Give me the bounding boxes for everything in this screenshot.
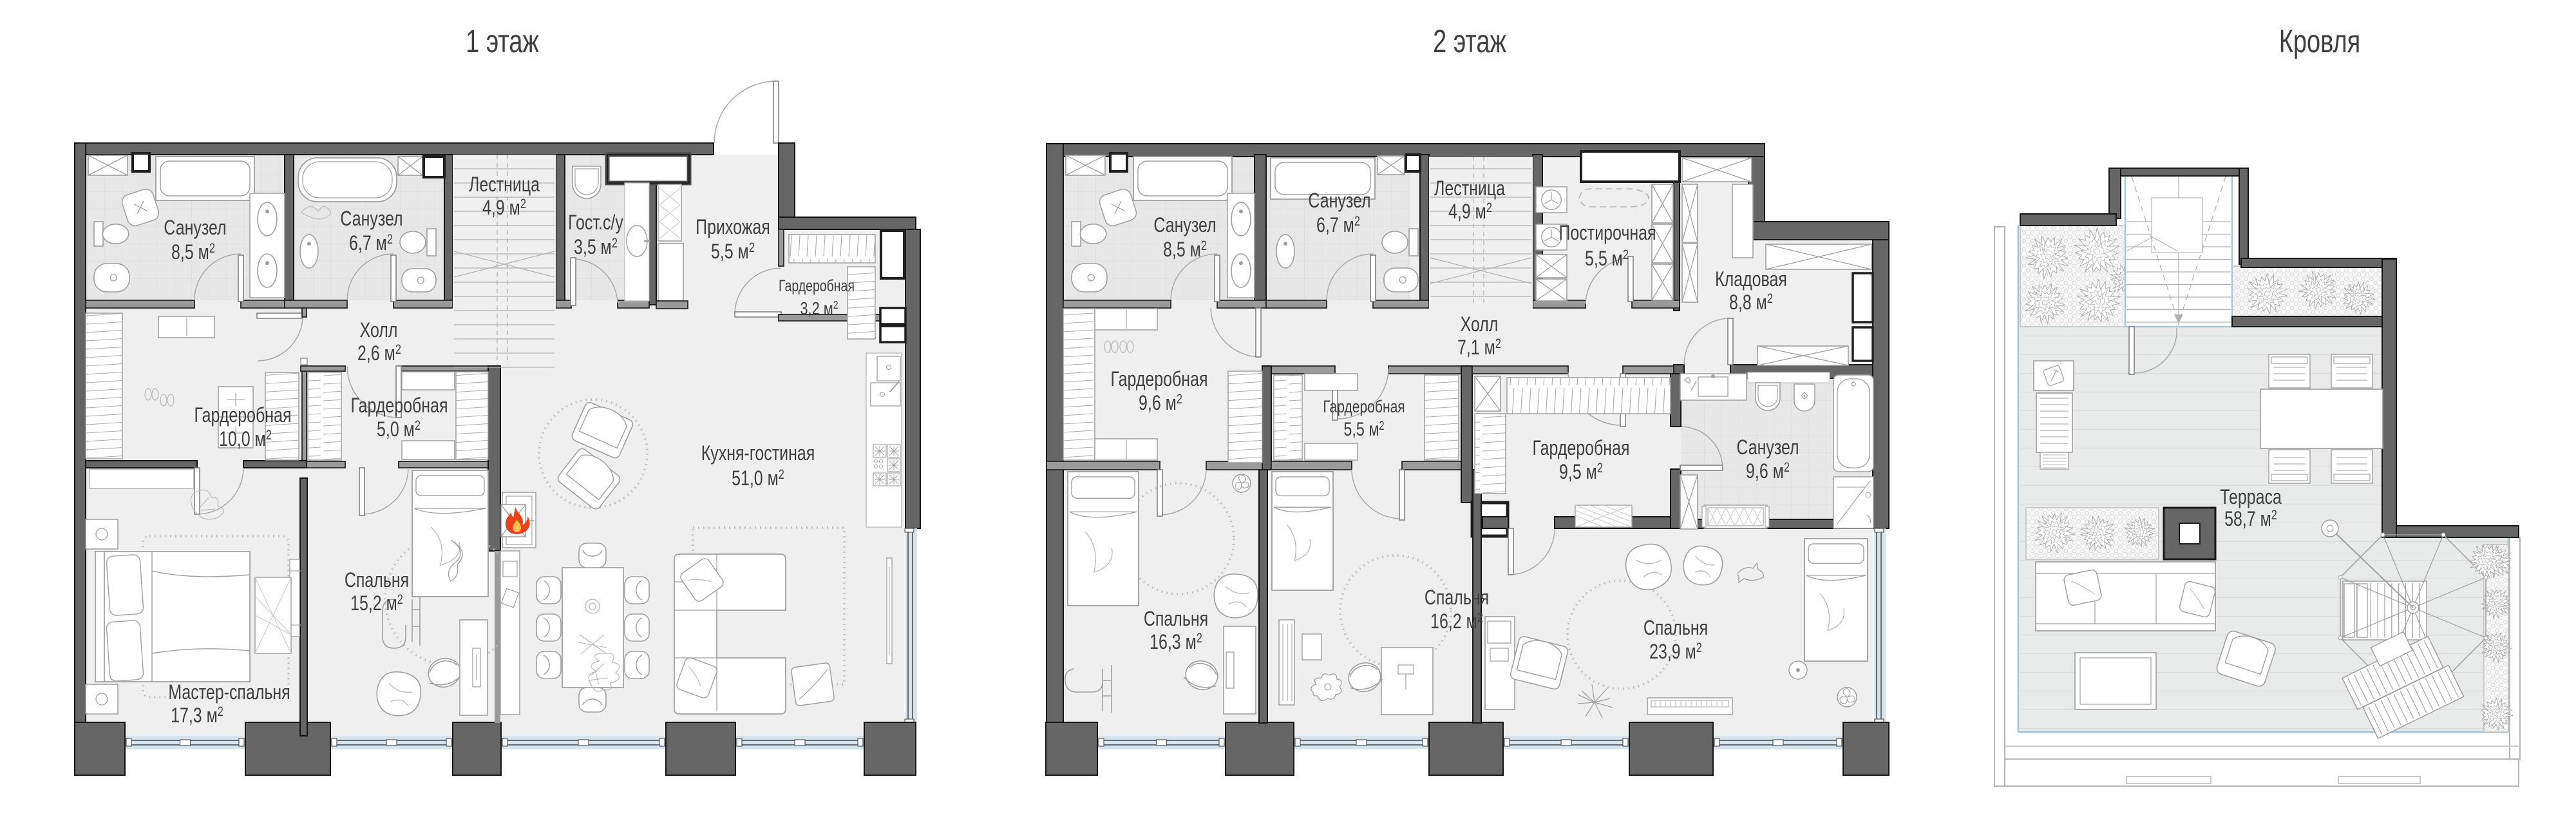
svg-text:23,9 м2: 23,9 м2	[1649, 640, 1702, 664]
svg-text:8,5 м2: 8,5 м2	[171, 240, 215, 264]
svg-text:16,3 м2: 16,3 м2	[1150, 630, 1202, 654]
svg-text:Санузел: Санузел	[164, 217, 226, 240]
svg-text:9,6 м2: 9,6 м2	[1139, 391, 1182, 415]
svg-text:Прихожая: Прихожая	[696, 216, 770, 239]
svg-text:Кровля: Кровля	[2279, 24, 2360, 59]
svg-text:Гардеробная: Гардеробная	[779, 277, 855, 295]
svg-text:51,0 м2: 51,0 м2	[732, 467, 784, 490]
svg-text:2 этаж: 2 этаж	[1433, 24, 1506, 59]
svg-text:6,7 м2: 6,7 м2	[349, 231, 393, 255]
svg-text:Санузел: Санузел	[340, 207, 402, 231]
svg-text:1 этаж: 1 этаж	[466, 24, 539, 59]
svg-text:4,9 м2: 4,9 м2	[482, 196, 526, 220]
svg-text:Лестница: Лестница	[1434, 177, 1505, 200]
svg-text:Терраса: Терраса	[2220, 486, 2282, 509]
svg-text:Гост.с/у: Гост.с/у	[568, 211, 623, 235]
svg-text:2,6 м2: 2,6 м2	[357, 342, 401, 365]
svg-text:5,0 м2: 5,0 м2	[377, 418, 421, 441]
svg-text:Гардеробная: Гардеробная	[351, 394, 448, 418]
svg-text:Холл: Холл	[1461, 313, 1499, 336]
svg-text:Санузел: Санузел	[1153, 214, 1216, 237]
svg-text:5,5 м2: 5,5 м2	[711, 240, 755, 264]
svg-text:Мастер-спальня: Мастер-спальня	[168, 681, 290, 704]
svg-text:Гардеробная: Гардеробная	[1533, 437, 1630, 460]
svg-text:9,5 м2: 9,5 м2	[1559, 460, 1603, 484]
svg-text:Спальня: Спальня	[345, 569, 409, 592]
svg-text:17,3 м2: 17,3 м2	[171, 704, 223, 727]
svg-text:Холл: Холл	[360, 319, 398, 342]
svg-text:Лестница: Лестница	[469, 173, 540, 197]
svg-text:Спальня: Спальня	[1643, 617, 1708, 640]
svg-text:10,0 м2: 10,0 м2	[219, 427, 272, 451]
svg-text:4,9 м2: 4,9 м2	[1448, 200, 1492, 224]
svg-text:3,5 м2: 3,5 м2	[574, 235, 618, 259]
svg-text:Гардеробная: Гардеробная	[1111, 368, 1208, 391]
svg-text:Постирочная: Постирочная	[1558, 222, 1656, 245]
svg-text:8,5 м2: 8,5 м2	[1163, 238, 1207, 262]
svg-text:Санузел: Санузел	[1308, 189, 1370, 213]
svg-text:6,7 м2: 6,7 м2	[1316, 213, 1360, 237]
svg-text:5,5 м2: 5,5 м2	[1585, 247, 1629, 271]
svg-text:16,2 м2: 16,2 м2	[1430, 610, 1483, 633]
svg-text:3,2 м2: 3,2 м2	[800, 298, 838, 318]
svg-text:Спальня: Спальня	[1425, 586, 1489, 610]
svg-text:Гардеробная: Гардеробная	[194, 404, 292, 427]
svg-text:Спальня: Спальня	[1144, 608, 1208, 631]
svg-text:Кухня-гостиная: Кухня-гостиная	[701, 442, 815, 465]
svg-text:9,6 м2: 9,6 м2	[1746, 459, 1790, 483]
svg-text:Кладовая: Кладовая	[1715, 268, 1787, 291]
svg-text:8,8 м2: 8,8 м2	[1729, 291, 1773, 314]
svg-text:58,7 м2: 58,7 м2	[2224, 507, 2277, 531]
svg-text:15,2 м2: 15,2 м2	[350, 592, 403, 615]
svg-text:7,1 м2: 7,1 м2	[1457, 336, 1501, 360]
svg-text:5,5 м2: 5,5 м2	[1343, 418, 1384, 439]
svg-text:Гардеробная: Гардеробная	[1323, 398, 1405, 417]
svg-text:Санузел: Санузел	[1736, 436, 1799, 459]
